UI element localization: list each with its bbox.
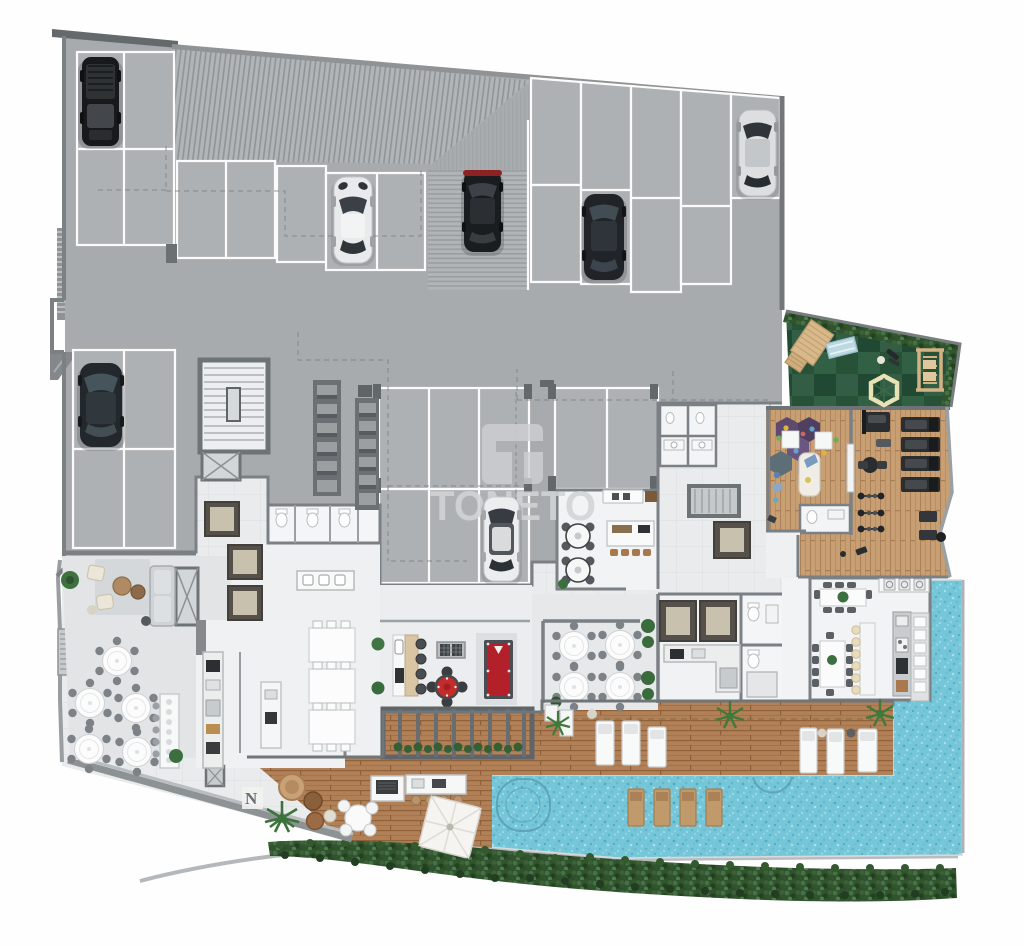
svg-text:N: N	[245, 789, 258, 808]
